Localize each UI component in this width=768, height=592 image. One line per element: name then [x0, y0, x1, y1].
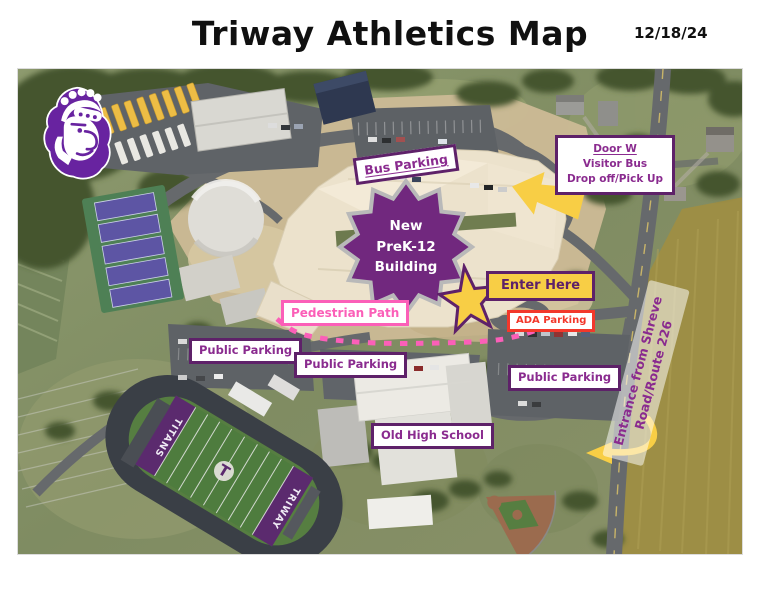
page-date: 12/18/24	[634, 24, 744, 42]
public-parking-label-west: Public Parking	[189, 338, 302, 364]
enter-here-label: Enter Here	[486, 271, 595, 301]
new-building-line3: Building	[375, 257, 438, 278]
door-w-line1: Door W	[561, 142, 669, 157]
pedestrian-path-label: Pedestrian Path	[281, 300, 409, 326]
public-parking-label-middle: Public Parking	[294, 352, 407, 378]
public-parking-label-east: Public Parking	[508, 365, 621, 391]
trojan-mascot-icon	[38, 82, 118, 186]
door-w-line3: Drop off/Pick Up	[561, 172, 669, 187]
old-high-school-label: Old High School	[371, 423, 494, 449]
door-w-label: Door W Visitor Bus Drop off/Pick Up	[555, 135, 675, 195]
bus-parking-text: Bus Parking	[363, 151, 448, 178]
door-w-line2: Visitor Bus	[561, 157, 669, 172]
page: { "colors": { "purple_dark": "#5E2169", …	[0, 0, 768, 592]
new-building-line1: New	[390, 216, 423, 237]
new-building-line2: PreK-12	[376, 237, 435, 258]
page-title: Triway Athletics Map	[120, 14, 660, 53]
aerial-campus-map: T TITANS TRIWAY	[17, 68, 743, 555]
south-white-building	[367, 495, 433, 529]
ada-parking-label: ADA Parking	[507, 310, 595, 332]
